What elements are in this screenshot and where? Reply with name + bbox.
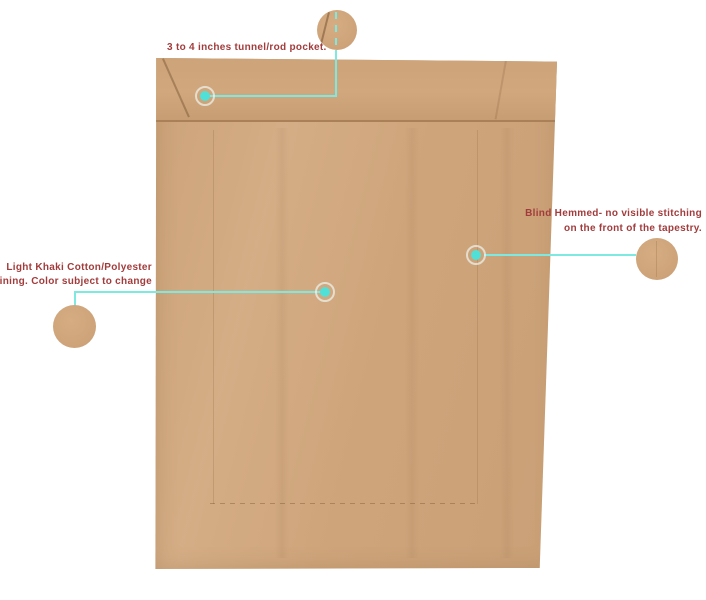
fabric-crease xyxy=(405,128,419,558)
lining-detail-circle xyxy=(53,305,96,348)
fabric-crease xyxy=(500,128,514,558)
lining-label-line2: lining. Color subject to change xyxy=(0,275,152,289)
blind-hem-label-line2: on the front of the tapestry. xyxy=(525,221,702,236)
rod-pocket-hotspot-dot-icon[interactable] xyxy=(195,86,215,106)
lining-label: Light Khaki Cotton/Polyester lining. Col… xyxy=(0,261,152,289)
detail-fold-line xyxy=(320,12,329,44)
fabric-crease xyxy=(275,128,289,558)
lining-stitch-line-left xyxy=(213,130,214,504)
lining-callout-line-vertical xyxy=(74,291,76,306)
tapestry-fabric-panel xyxy=(155,58,557,569)
teal-dot-icon xyxy=(471,250,481,260)
blind-hem-hotspot-dot-icon[interactable] xyxy=(466,245,486,265)
rod-pocket-callout-line-horizontal xyxy=(205,95,337,97)
lining-stitch-line-bottom xyxy=(210,503,480,504)
rod-pocket-detail-circle xyxy=(317,10,357,50)
lining-label-line1: Light Khaki Cotton/Polyester xyxy=(0,261,152,275)
product-annotation-figure: 3 to 4 inches tunnel/rod pocket. Blind H… xyxy=(0,0,706,600)
blind-hem-callout-line xyxy=(484,254,636,256)
lining-hotspot-dot-icon[interactable] xyxy=(315,282,335,302)
teal-dot-icon xyxy=(200,91,210,101)
rod-pocket-callout-line-vertical xyxy=(335,50,337,96)
blind-hem-detail-circle xyxy=(636,238,678,280)
detail-seam-line xyxy=(656,241,657,277)
lining-stitch-line-right xyxy=(477,130,478,504)
blind-hem-label-line1: Blind Hemmed- no visible stitching xyxy=(525,206,702,221)
blind-hem-label: Blind Hemmed- no visible stitching on th… xyxy=(525,206,702,236)
detail-dashed-measure-line xyxy=(335,12,337,48)
rod-pocket-label: 3 to 4 inches tunnel/rod pocket. xyxy=(167,41,327,55)
lining-callout-line-horizontal xyxy=(75,291,325,293)
teal-dot-icon xyxy=(320,287,330,297)
